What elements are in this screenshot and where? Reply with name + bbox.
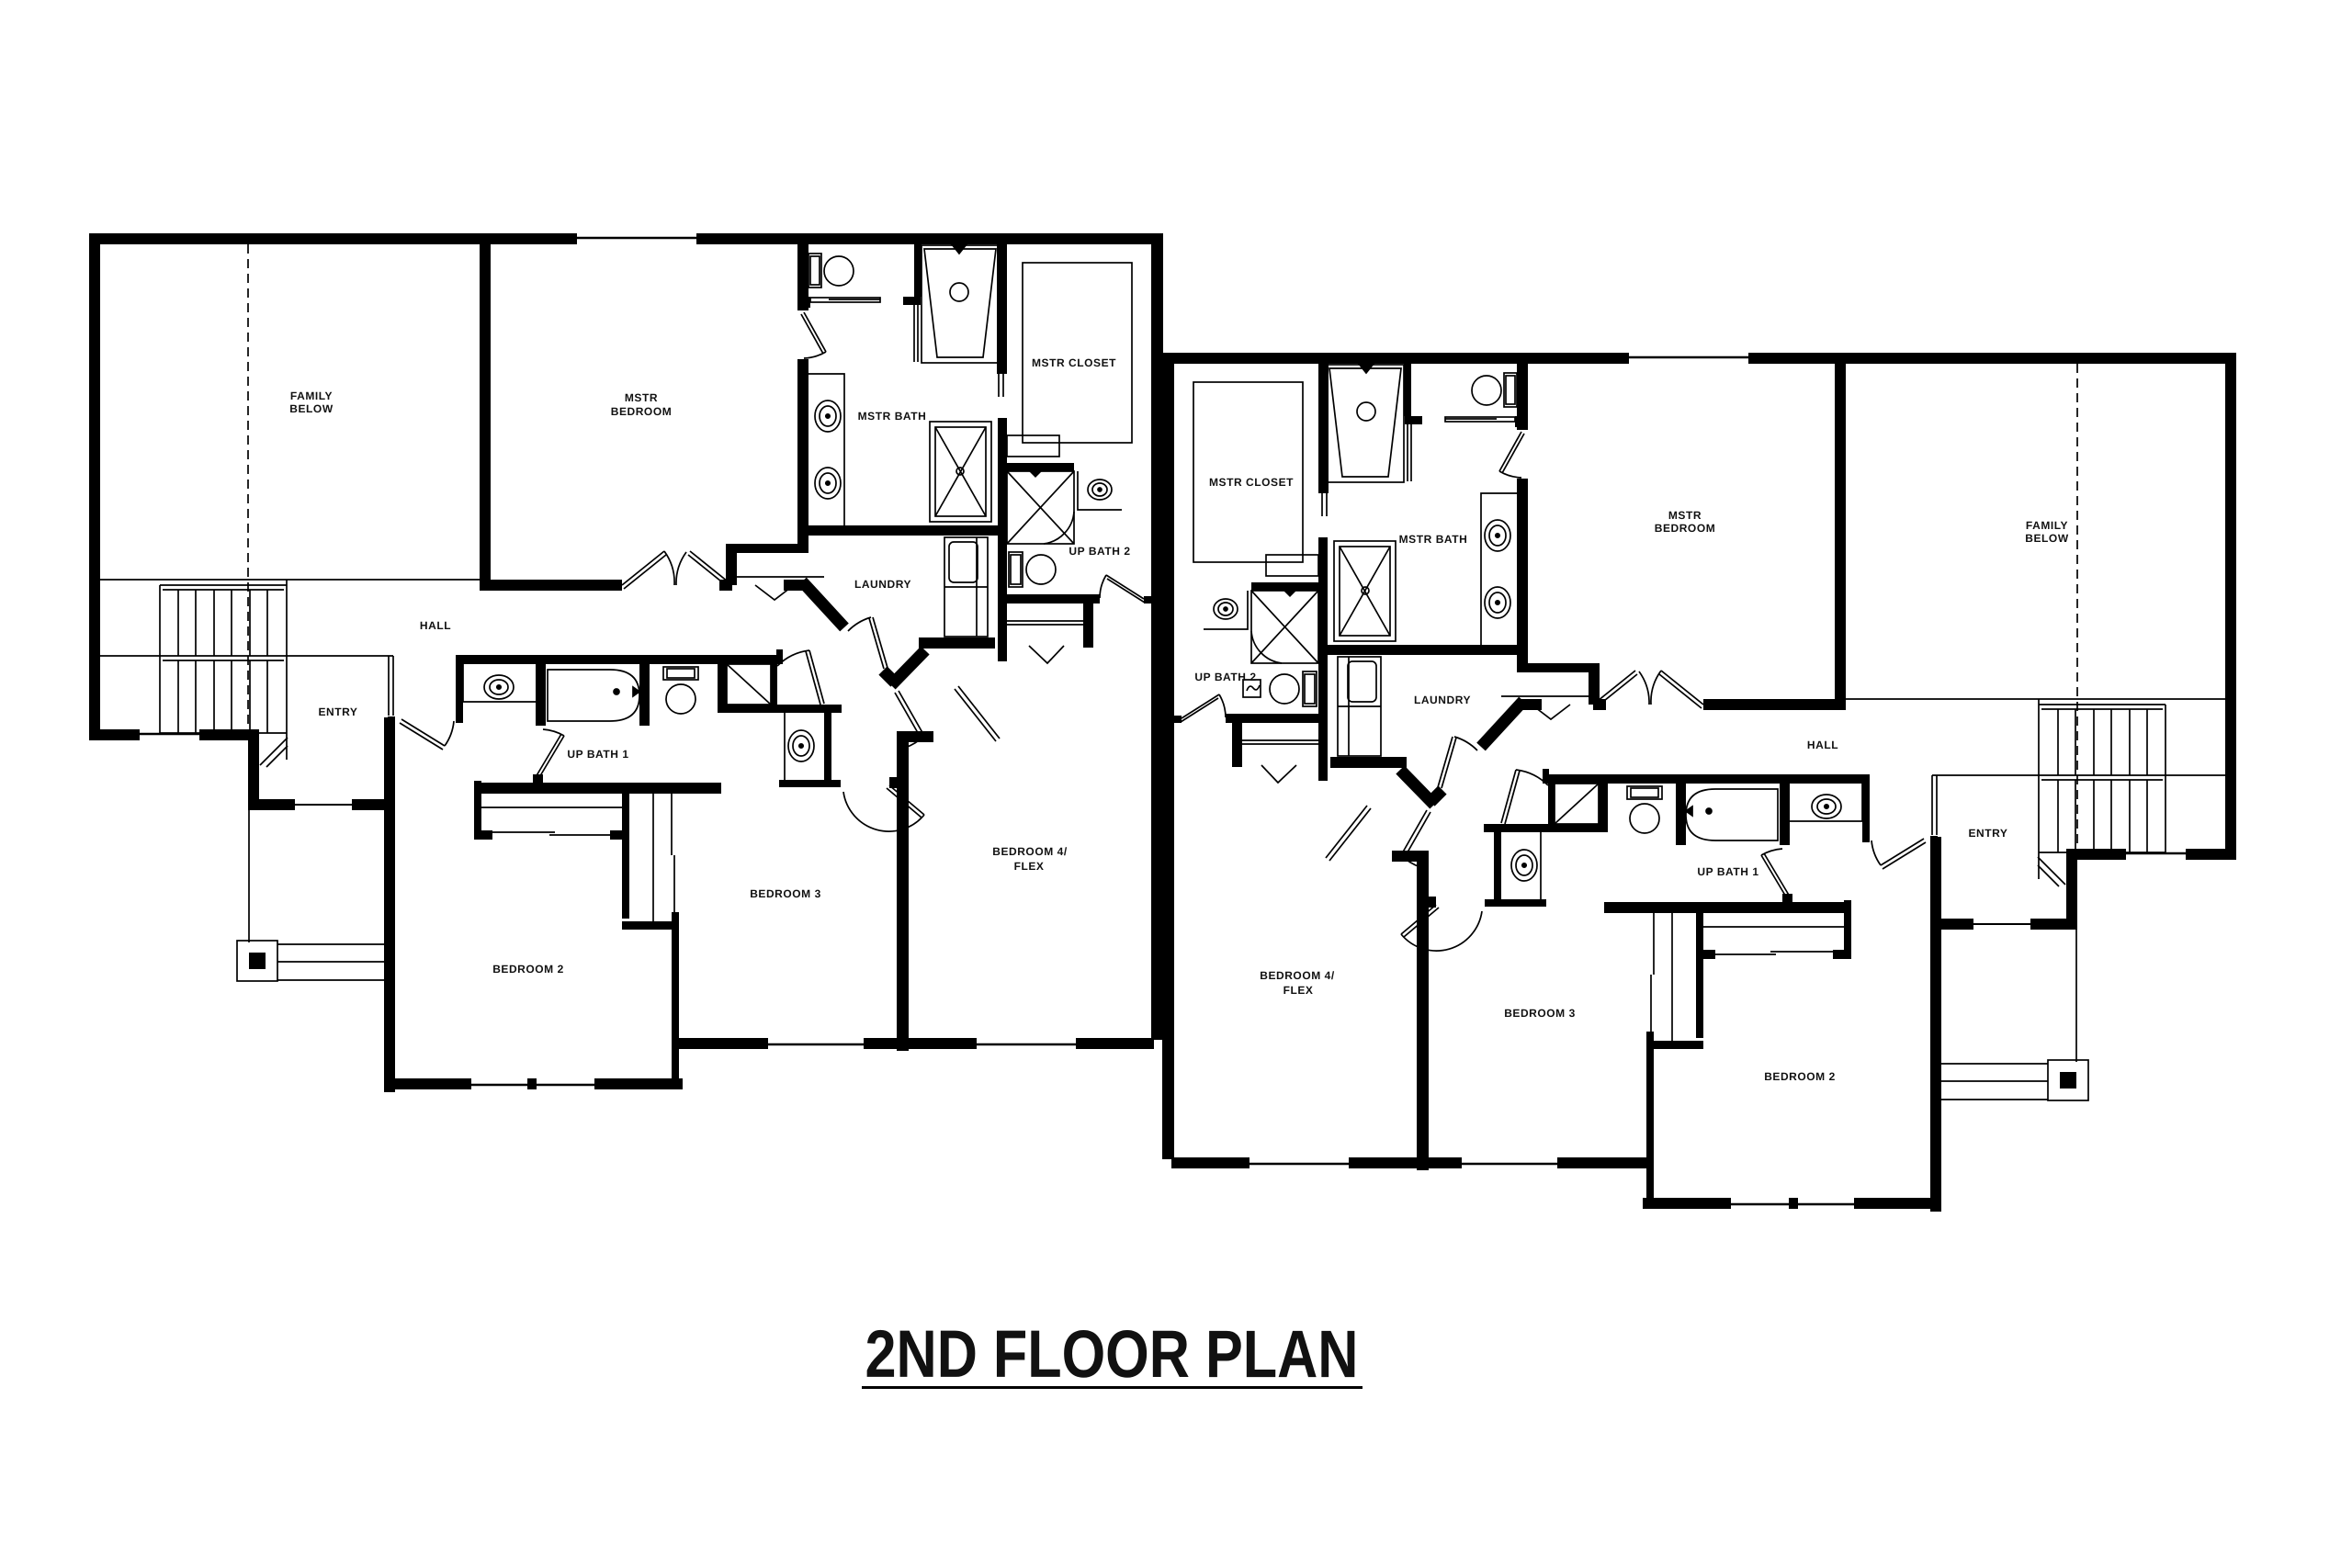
svg-text:BEDROOM 2: BEDROOM 2 [492,963,564,976]
svg-text:ENTRY: ENTRY [1969,827,2008,840]
svg-text:BEDROOM 3: BEDROOM 3 [750,887,821,900]
svg-text:BELOW: BELOW [2025,532,2069,545]
svg-text:BEDROOM 4/: BEDROOM 4/ [992,845,1068,858]
svg-text:BEDROOM: BEDROOM [1655,522,1716,535]
svg-text:FAMILY: FAMILY [290,389,333,402]
svg-text:FAMILY: FAMILY [2026,519,2068,532]
svg-text:BEDROOM 3: BEDROOM 3 [1504,1007,1576,1020]
svg-text:LAUNDRY: LAUNDRY [854,578,911,591]
svg-text:MSTR CLOSET: MSTR CLOSET [1032,356,1116,369]
svg-text:MSTR CLOSET: MSTR CLOSET [1209,476,1294,489]
svg-text:UP BATH 2: UP BATH 2 [1069,545,1130,558]
svg-text:MSTR BATH: MSTR BATH [1399,533,1468,546]
svg-text:MSTR: MSTR [625,391,658,404]
svg-text:BEDROOM 2: BEDROOM 2 [1764,1070,1836,1083]
svg-text:MSTR: MSTR [1668,509,1702,522]
svg-text:UP BATH 2: UP BATH 2 [1194,671,1256,683]
svg-text:UP BATH 1: UP BATH 1 [1697,865,1758,878]
svg-text:2ND FLOOR PLAN: 2ND FLOOR PLAN [865,1317,1358,1392]
svg-text:BEDROOM 4/: BEDROOM 4/ [1260,969,1335,982]
svg-text:HALL: HALL [420,619,451,632]
svg-text:LAUNDRY: LAUNDRY [1414,694,1471,706]
svg-text:HALL: HALL [1807,739,1838,751]
svg-text:FLEX: FLEX [1014,860,1045,873]
svg-text:BEDROOM: BEDROOM [611,405,673,418]
svg-text:BELOW: BELOW [289,402,334,415]
svg-text:ENTRY: ENTRY [319,705,358,718]
svg-text:MSTR BATH: MSTR BATH [858,410,927,423]
svg-text:FLEX: FLEX [1283,984,1314,997]
svg-text:UP BATH 1: UP BATH 1 [567,748,628,761]
